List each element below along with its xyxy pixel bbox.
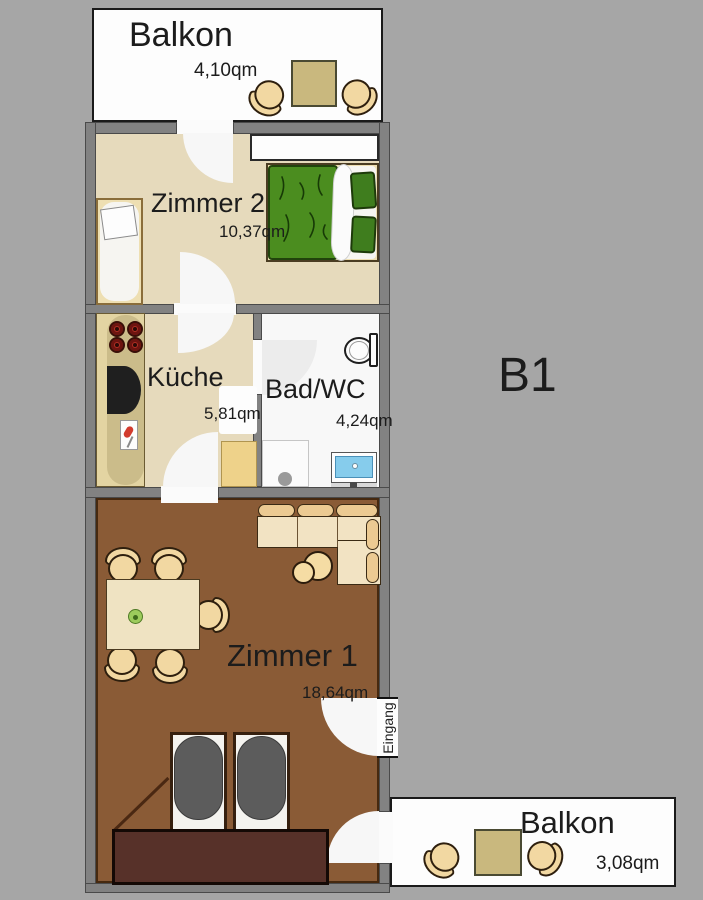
bed-pillow <box>350 171 378 210</box>
room-name-balcony-top: Balkon <box>129 16 233 55</box>
wall <box>253 313 262 340</box>
sofa-seam <box>297 517 298 547</box>
sideboard <box>112 829 329 885</box>
door-opening <box>379 812 393 863</box>
dining-table <box>106 579 200 650</box>
side-table <box>292 561 315 584</box>
sofa-seam <box>337 517 338 547</box>
wall <box>379 757 390 812</box>
sofa-back-cushion <box>366 519 379 550</box>
wall <box>379 122 390 698</box>
room-area-balcony-bottom: 3,08qm <box>596 853 659 875</box>
kitchen-cabinet <box>221 441 257 487</box>
wall <box>85 122 96 893</box>
bed-pillow <box>350 215 377 253</box>
washbasin-pipe <box>350 482 357 488</box>
kitchen-sink <box>107 366 141 414</box>
wall <box>85 487 162 498</box>
sofa-back-cushion <box>258 504 295 517</box>
wall <box>233 122 390 134</box>
wall <box>85 122 177 134</box>
duvet-wrinkles <box>270 167 336 258</box>
toilet-rim <box>349 341 369 360</box>
floor-plan: Balkon 4,10qm <box>0 0 703 900</box>
room-area-zimmer2: 10,37qm <box>219 222 285 242</box>
sofa-back-cushion <box>336 504 378 517</box>
room-name-zimmer2: Zimmer 2 <box>151 188 265 219</box>
dining-chair <box>151 646 189 684</box>
wall <box>218 487 390 498</box>
door-opening <box>161 486 218 503</box>
toilet-tank <box>369 333 378 367</box>
room-area-balcony-top: 4,10qm <box>194 60 257 82</box>
balcony-table <box>474 829 522 876</box>
sofa-back-cushion <box>297 504 334 517</box>
room-area-zimmer1: 18,64qm <box>302 683 368 703</box>
plant <box>128 609 143 624</box>
unit-label: B1 <box>498 348 557 403</box>
shower-drain <box>278 472 292 486</box>
window-sill <box>250 134 379 161</box>
bed-pillow <box>100 205 138 240</box>
stove-burner <box>127 321 143 337</box>
entrance-label: Eingang <box>377 697 398 758</box>
room-name-bad: Bad/WC <box>265 374 366 405</box>
door-opening <box>177 120 233 134</box>
stove-burner <box>109 321 125 337</box>
balcony-table <box>291 60 337 107</box>
room-name-zimmer1: Zimmer 1 <box>227 638 358 674</box>
room-area-bad: 4,24qm <box>336 411 393 431</box>
stove-burner <box>127 337 143 353</box>
room-name-kueche: Küche <box>147 362 224 393</box>
stove-burner <box>109 337 125 353</box>
bed-duvet <box>237 736 286 820</box>
entrance-label-text: Eingang <box>380 702 396 753</box>
double-bed-duvet <box>268 165 338 260</box>
bed-duvet <box>174 736 223 820</box>
room-area-kueche: 5,81qm <box>204 404 261 424</box>
washbasin-faucet <box>352 463 358 469</box>
sofa-back-cushion <box>366 552 379 583</box>
